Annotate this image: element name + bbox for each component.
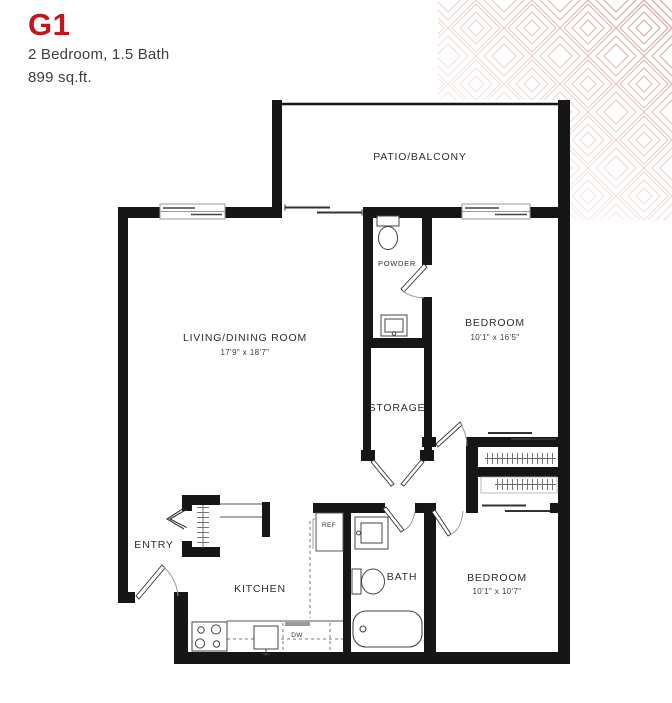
unit-name: G1 bbox=[28, 8, 169, 42]
bath-sink bbox=[355, 517, 388, 549]
closet2-rod-hatching bbox=[481, 477, 557, 493]
label-fridge: REF bbox=[322, 522, 336, 529]
entry-closet-shelf-lines bbox=[220, 504, 262, 517]
label-bath: BATH bbox=[387, 571, 417, 583]
powder-toilet bbox=[377, 216, 399, 250]
door-bedroom2 bbox=[432, 510, 463, 536]
label-living-room: LIVING/DINING ROOM bbox=[183, 332, 307, 344]
door-powder bbox=[401, 264, 427, 298]
label-powder: POWDER bbox=[378, 259, 416, 268]
bath-tub bbox=[353, 611, 422, 647]
kitchen-dw-front bbox=[285, 622, 310, 626]
unit-area: 899 sq.ft. bbox=[28, 67, 169, 88]
entry-closet-rod-hatching bbox=[197, 505, 209, 548]
label-storage: STORAGE bbox=[369, 402, 426, 414]
label-bedroom1: BEDROOM bbox=[465, 317, 525, 329]
window-bedroom1 bbox=[462, 204, 530, 219]
unit-type: 2 Bedroom, 1.5 Bath bbox=[28, 44, 169, 65]
dims-living-room: 17'9" x 18'7" bbox=[220, 348, 269, 357]
window-living-room bbox=[160, 204, 225, 219]
closet1-rod-hatching bbox=[485, 453, 556, 464]
kitchen-stove bbox=[192, 622, 227, 651]
door-bedroom1 bbox=[436, 422, 467, 447]
label-kitchen: KITCHEN bbox=[234, 583, 286, 595]
label-dishwasher: DW bbox=[291, 632, 303, 639]
sliding-door-closet2 bbox=[482, 506, 550, 512]
floor-plan: PATIO/BALCONY LIVING/DINING ROOM 17'9" x… bbox=[0, 0, 672, 703]
door-entry bbox=[136, 565, 178, 599]
powder-sink bbox=[381, 315, 407, 336]
plan-header: G1 2 Bedroom, 1.5 Bath 899 sq.ft. bbox=[28, 8, 169, 88]
label-patio: PATIO/BALCONY bbox=[373, 151, 466, 163]
kitchen-fridge bbox=[313, 513, 343, 551]
label-bedroom2: BEDROOM bbox=[467, 572, 527, 584]
door-entry-closet-bifold bbox=[167, 508, 187, 529]
door-storage-double bbox=[371, 460, 424, 486]
kitchen-sink bbox=[254, 626, 278, 656]
dims-bedroom1: 10'1" x 16'5" bbox=[470, 333, 519, 342]
label-entry: ENTRY bbox=[134, 539, 173, 551]
bath-toilet bbox=[352, 569, 385, 594]
dims-bedroom2: 10'1" x 10'7" bbox=[472, 587, 521, 596]
